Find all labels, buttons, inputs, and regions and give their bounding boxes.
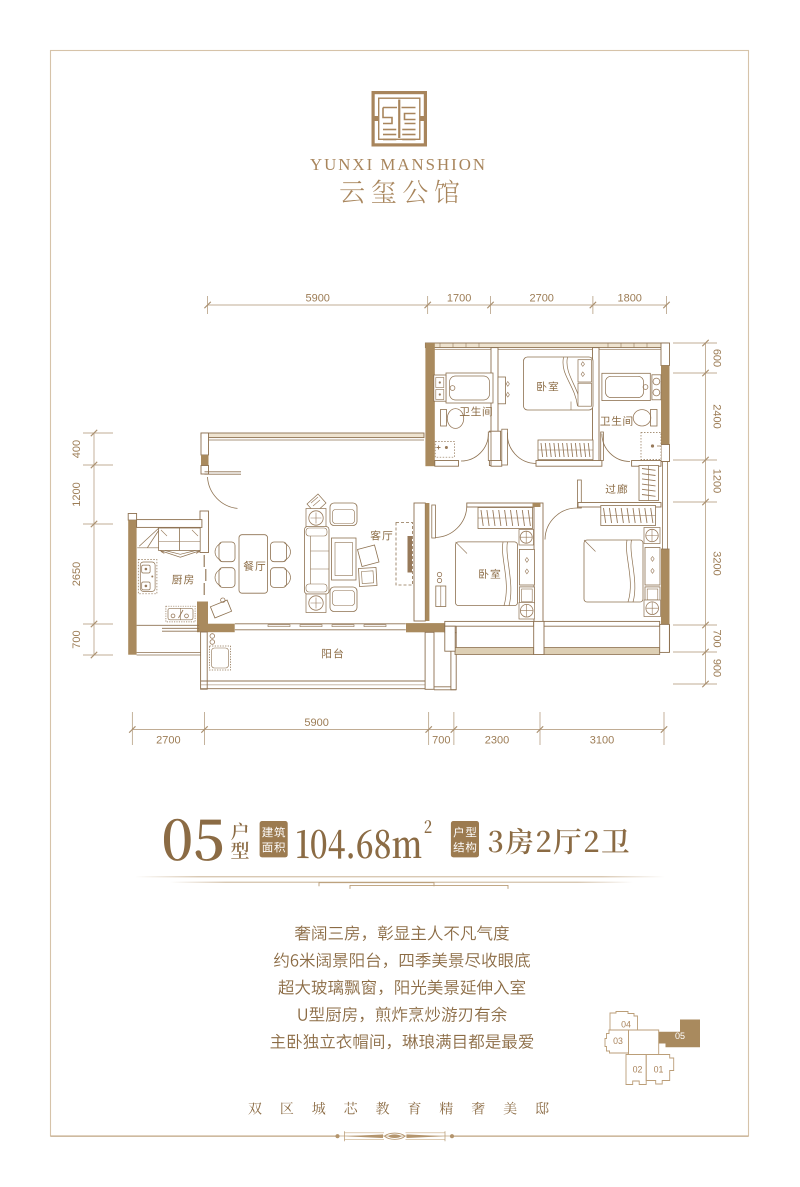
svg-text:900: 900 (711, 659, 723, 677)
svg-text:01: 01 (654, 1065, 664, 1075)
svg-text:1200: 1200 (71, 482, 83, 506)
svg-text:3100: 3100 (590, 735, 614, 747)
svg-text:700: 700 (71, 630, 83, 648)
svg-text:YUNXI MANSHION: YUNXI MANSHION (310, 155, 487, 174)
svg-text:400: 400 (71, 440, 83, 458)
svg-text:1700: 1700 (447, 293, 471, 305)
svg-text:700: 700 (432, 735, 450, 747)
svg-text:5900: 5900 (305, 293, 329, 305)
svg-text:2700: 2700 (156, 735, 180, 747)
svg-text:1800: 1800 (617, 293, 641, 305)
svg-text:2650: 2650 (71, 562, 83, 586)
svg-text:2300: 2300 (485, 735, 509, 747)
svg-text:2400: 2400 (711, 404, 723, 428)
svg-text:5900: 5900 (304, 717, 328, 729)
svg-text:1200: 1200 (711, 469, 723, 493)
svg-text:03: 03 (613, 1036, 623, 1046)
svg-text:700: 700 (711, 629, 723, 647)
svg-text:05: 05 (675, 1031, 685, 1041)
svg-text:02: 02 (633, 1065, 643, 1075)
svg-text:04: 04 (621, 1020, 631, 1030)
svg-text:600: 600 (711, 349, 723, 367)
svg-text:2700: 2700 (529, 293, 553, 305)
svg-text:3200: 3200 (711, 551, 723, 575)
